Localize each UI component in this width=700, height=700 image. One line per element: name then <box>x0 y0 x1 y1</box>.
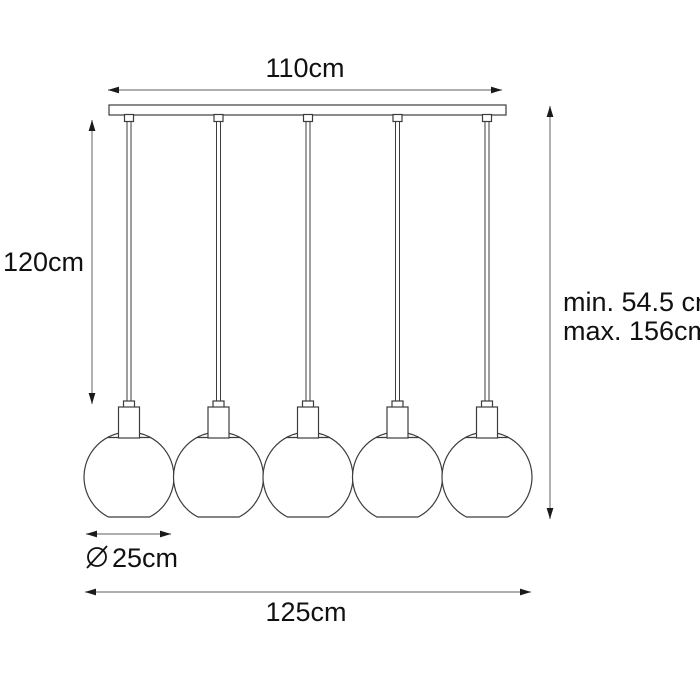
cord <box>217 121 221 403</box>
height-max-label: max. 156cm <box>563 316 700 346</box>
socket <box>298 407 319 438</box>
socket <box>477 407 498 438</box>
bar-width-label: 110cm <box>265 53 344 83</box>
dimension-diagram: 110cm 120cm min. 54.5 cm max. 156cm 25cm… <box>0 0 700 700</box>
diameter-icon <box>87 546 107 568</box>
total-width-label: 125cm <box>265 597 346 627</box>
globe-shade <box>442 432 532 517</box>
globe-shade <box>263 432 353 517</box>
pendant-lamp-drawing: 110cm 120cm min. 54.5 cm max. 156cm 25cm… <box>0 0 700 700</box>
pendant-unit-1 <box>84 115 174 518</box>
socket <box>387 407 408 438</box>
pendant-unit-2 <box>174 115 264 518</box>
dimension-overall-height: min. 54.5 cm max. 156cm <box>550 106 700 519</box>
globe-shade <box>84 432 174 517</box>
drop-length-label: 120cm <box>3 247 84 277</box>
cord-connector <box>214 115 223 122</box>
dimension-drop-length: 120cm <box>3 120 92 404</box>
cord <box>306 121 310 403</box>
dimension-total-width: 125cm <box>85 592 531 627</box>
globe-shade <box>174 432 264 517</box>
globe-shade <box>353 432 443 517</box>
socket <box>119 407 140 438</box>
dimension-bar-width: 110cm <box>108 53 502 90</box>
shade-diameter-label: 25cm <box>112 543 178 573</box>
dimension-shade-diameter: 25cm <box>86 534 178 573</box>
ceiling-bar <box>109 105 506 115</box>
cord-connector <box>393 115 402 122</box>
pendant-unit-3 <box>263 115 353 518</box>
cord <box>396 121 400 403</box>
pendant-unit-4 <box>353 115 443 518</box>
height-min-label: min. 54.5 cm <box>563 287 700 317</box>
cord <box>127 121 131 403</box>
cord-connector <box>304 115 313 122</box>
cord-connector <box>125 115 134 122</box>
socket <box>208 407 229 438</box>
cord-connector <box>483 115 492 122</box>
pendant-unit-5 <box>442 115 532 518</box>
cord <box>485 121 489 403</box>
